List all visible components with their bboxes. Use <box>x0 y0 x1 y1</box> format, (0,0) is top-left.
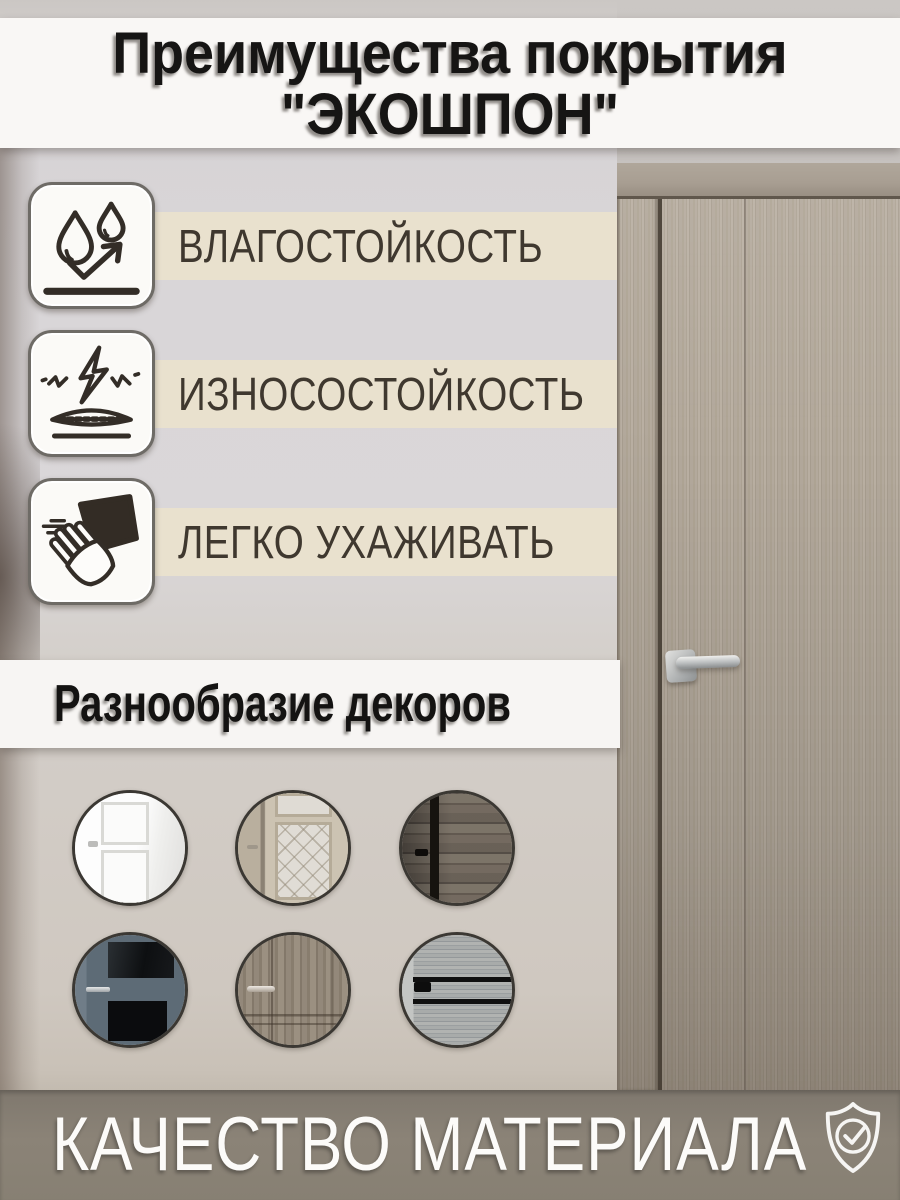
glass-top <box>275 793 332 817</box>
door-handle-lever <box>676 655 740 669</box>
glass-insert <box>275 822 332 901</box>
ecoshpon-door-photo <box>658 199 900 1090</box>
feature-icon-box-moisture <box>28 182 155 309</box>
dark-glass-panel <box>108 942 174 978</box>
door-panel <box>101 802 149 845</box>
impact-protection-icon <box>37 339 146 448</box>
door-frame-head <box>617 163 900 199</box>
decor-blue-gray-door-dark-glass <box>72 932 188 1048</box>
feature-icon-box-care <box>28 478 155 605</box>
page-title-line1: Преимущества покрытия <box>32 23 869 84</box>
feature-label-wear: ИЗНОСОСТОЙКОСТЬ <box>178 360 585 428</box>
ecoshpon-infographic: Преимущества покрытия "ЭКОШПОН" ВЛАГОСТО… <box>0 0 900 1200</box>
water-drops-icon <box>37 191 146 300</box>
door-handle <box>414 982 431 992</box>
feature-label-care: ЛЕГКО УХАЖИВАТЬ <box>178 508 555 576</box>
feature-label-moisture: ВЛАГОСТОЙКОСТЬ <box>178 212 543 280</box>
decors-banner: Разнообразие декоров <box>0 660 620 748</box>
door-handle <box>247 845 258 849</box>
decor-light-gray-wood-black-inlays <box>399 932 515 1048</box>
decor-taupe-wood-panel-door <box>235 932 351 1048</box>
quality-banner: КАЧЕСТВО МАТЕРИАЛА <box>0 1090 900 1200</box>
quality-shield-icon <box>820 1098 886 1178</box>
decor-image <box>402 793 512 903</box>
door-handle <box>88 841 98 847</box>
black-inlay-strip <box>413 977 512 982</box>
decor-image <box>402 935 512 1045</box>
wiping-hand-icon <box>37 487 146 596</box>
black-inlay-strip <box>413 999 512 1004</box>
decors-title: Разнообразие декоров <box>54 660 490 748</box>
decor-beige-door-patterned-glass <box>235 790 351 906</box>
title-banner: Преимущества покрытия "ЭКОШПОН" <box>0 18 900 148</box>
decor-image <box>75 793 185 903</box>
door-edge-strip <box>430 793 440 903</box>
door-handle <box>86 987 110 993</box>
decor-white-classic-panel-door <box>72 790 188 906</box>
page-title-line2: "ЭКОШПОН" <box>32 84 869 145</box>
door-frame-jamb <box>617 163 658 1090</box>
quality-label: КАЧЕСТВО МАТЕРИАЛА <box>52 1090 807 1200</box>
door-panel-seam <box>744 199 746 1090</box>
decor-image <box>75 935 185 1045</box>
feature-icon-box-wear <box>28 330 155 457</box>
decor-dark-rustic-wood <box>399 790 515 906</box>
door-handle <box>415 849 428 856</box>
decor-image <box>238 935 348 1045</box>
decor-image <box>238 793 348 903</box>
dark-glass-panel <box>108 1001 167 1041</box>
door-panel <box>101 850 149 904</box>
door-handle <box>247 986 276 993</box>
